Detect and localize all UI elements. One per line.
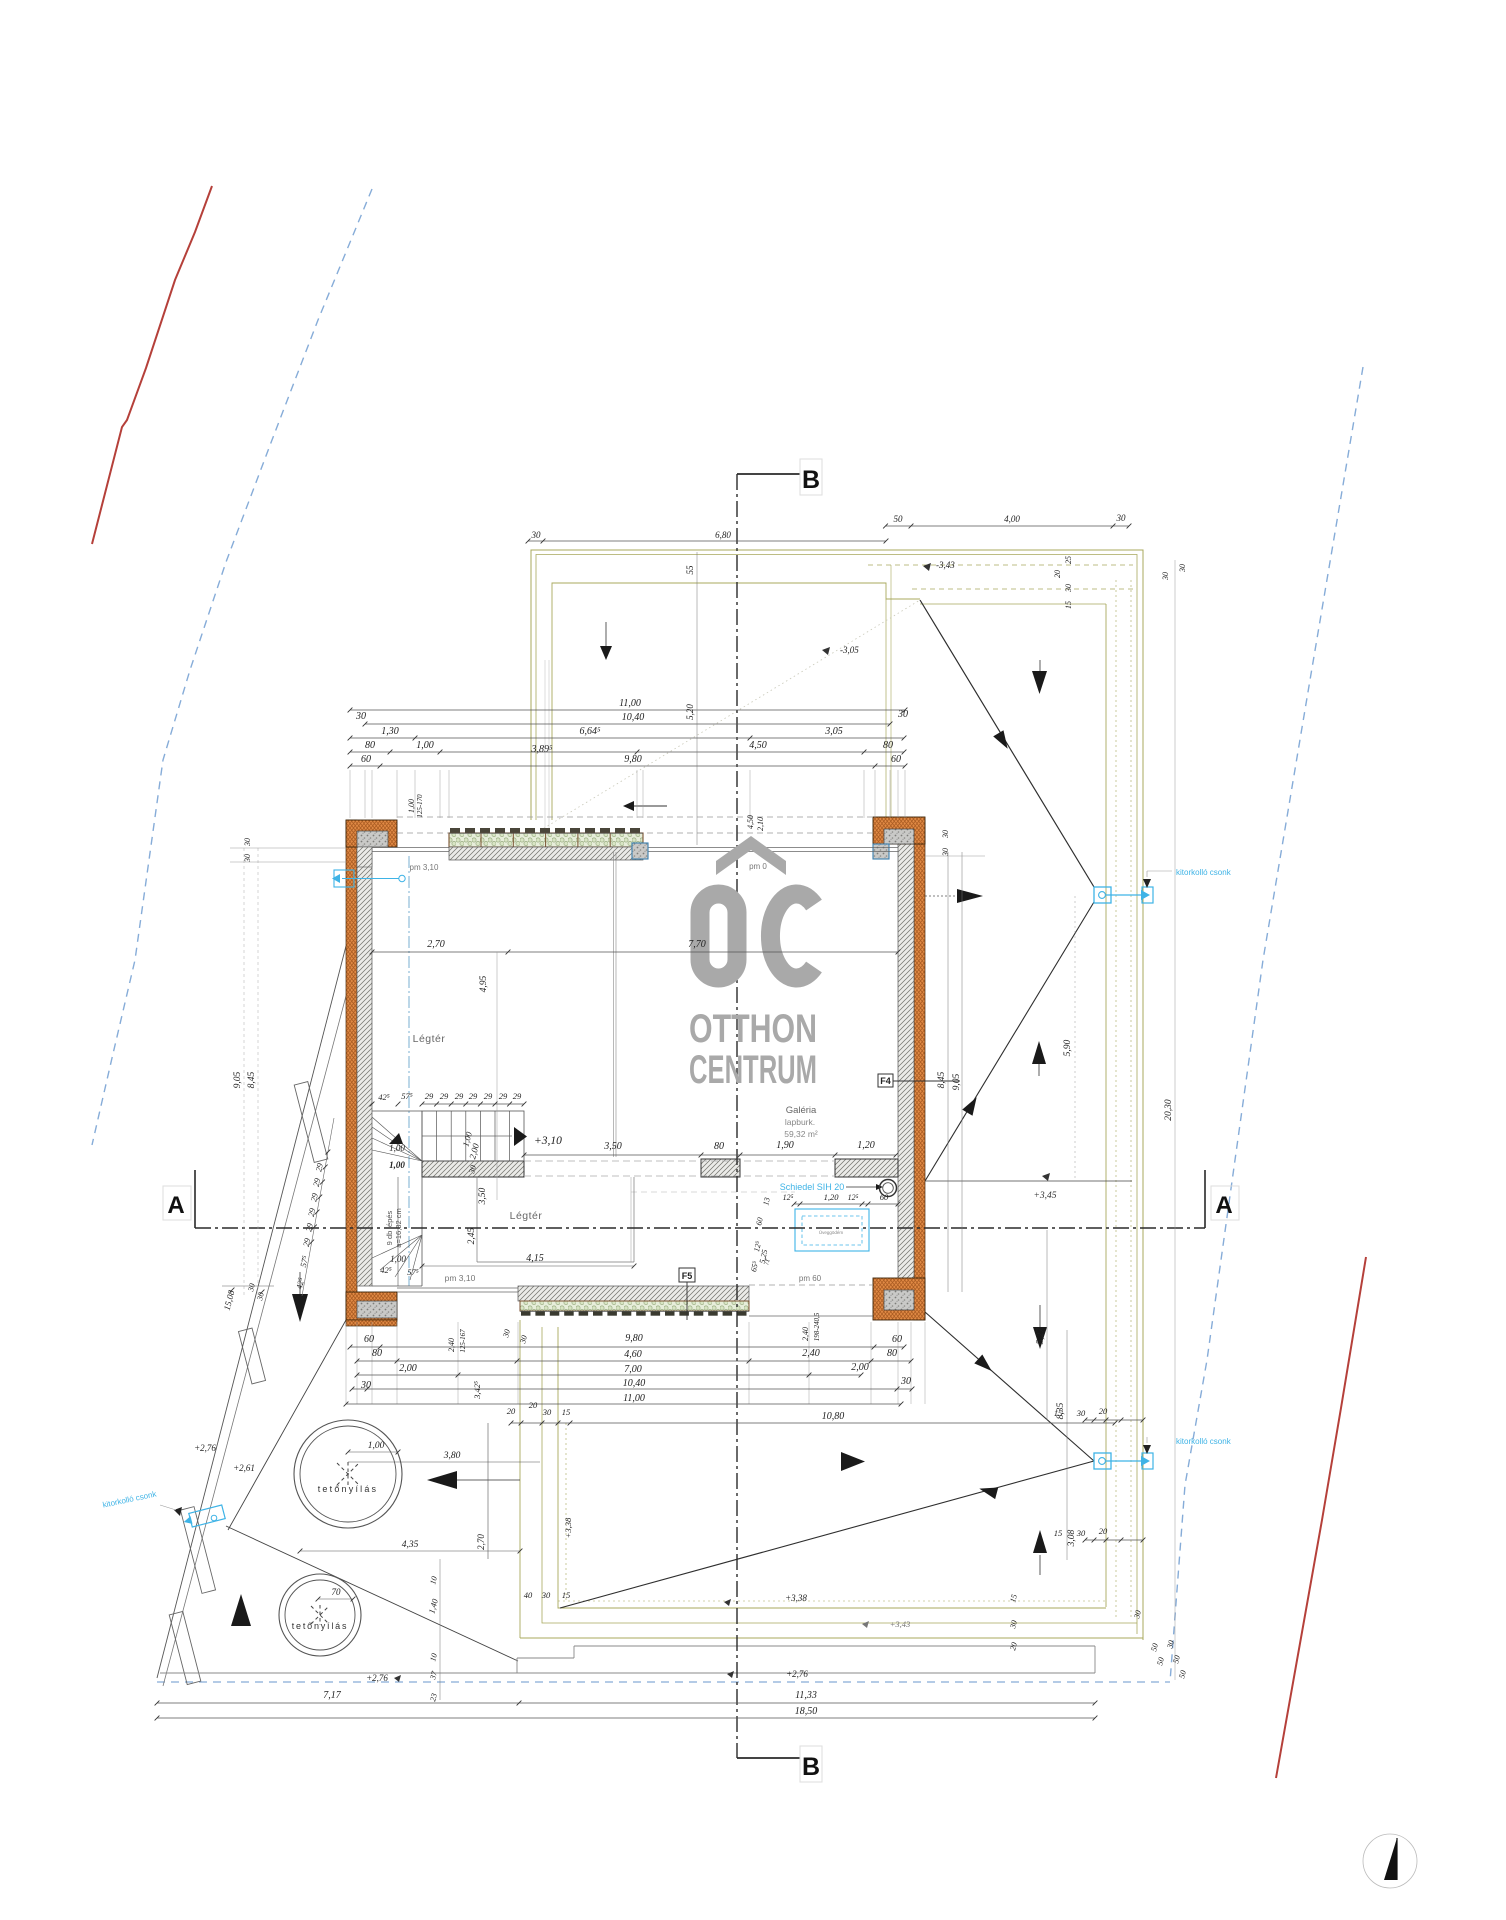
svg-text:4,60: 4,60: [624, 1349, 642, 1360]
svg-text:40: 40: [524, 1590, 533, 1600]
svg-text:1,90: 1,90: [776, 1140, 794, 1151]
svg-text:Schiedel SIH 20: Schiedel SIH 20: [780, 1182, 845, 1192]
svg-text:4,50: 4,50: [749, 740, 767, 751]
svg-text:9,05: 9,05: [233, 1071, 243, 1088]
svg-text:B: B: [802, 466, 820, 494]
svg-text:125-170: 125-170: [416, 794, 424, 818]
svg-text:29: 29: [425, 1091, 434, 1101]
svg-text:29: 29: [484, 1091, 493, 1101]
svg-text:9,05: 9,05: [952, 1073, 962, 1090]
svg-text:30: 30: [243, 854, 252, 863]
svg-text:30: 30: [1178, 564, 1187, 573]
svg-text:6,64⁵: 6,64⁵: [580, 726, 602, 737]
svg-text:11,33: 11,33: [795, 1690, 817, 1701]
svg-text:4,50: 4,50: [746, 815, 755, 829]
svg-text:2,00: 2,00: [851, 1362, 869, 1373]
svg-text:80: 80: [365, 740, 375, 751]
svg-text:30: 30: [542, 1407, 552, 1417]
svg-text:70: 70: [332, 1587, 342, 1597]
svg-text:A: A: [1215, 1192, 1232, 1219]
svg-text:pm 3,10: pm 3,10: [410, 863, 439, 872]
svg-text:57⁵: 57⁵: [407, 1267, 419, 1277]
svg-text:-3,05: -3,05: [840, 645, 859, 655]
svg-text:29: 29: [455, 1091, 464, 1101]
svg-text:+2,76: +2,76: [786, 1669, 808, 1679]
svg-text:60: 60: [892, 1334, 902, 1345]
svg-text:2,40: 2,40: [801, 1327, 810, 1341]
svg-text:B: B: [802, 1753, 820, 1781]
svg-text:2,45: 2,45: [467, 1227, 477, 1244]
svg-text:3,05: 3,05: [824, 726, 843, 737]
svg-text:5,90: 5,90: [1063, 1039, 1073, 1056]
svg-text:30: 30: [1064, 584, 1073, 593]
svg-text:2,70: 2,70: [427, 939, 445, 950]
svg-text:pm 3,10: pm 3,10: [445, 1273, 476, 1283]
svg-text:30: 30: [941, 848, 950, 857]
svg-text:A: A: [167, 1192, 184, 1219]
svg-text:1,00: 1,00: [407, 799, 416, 813]
svg-text:1,00: 1,00: [389, 1143, 405, 1153]
svg-text:15: 15: [1054, 1528, 1063, 1538]
svg-text:30: 30: [941, 830, 950, 839]
svg-text:20: 20: [1099, 1526, 1108, 1536]
svg-text:1,20: 1,20: [824, 1192, 840, 1202]
svg-text:3,80: 3,80: [443, 1451, 461, 1461]
svg-text:125-167: 125-167: [459, 1329, 467, 1353]
svg-text:2,70: 2,70: [476, 1534, 486, 1550]
svg-text:30: 30: [1161, 572, 1170, 581]
svg-text:20: 20: [507, 1406, 516, 1416]
svg-text:25: 25: [1064, 556, 1073, 564]
svg-text:30: 30: [900, 1376, 911, 1387]
svg-text:6,80: 6,80: [715, 530, 731, 540]
svg-text:1,30: 1,30: [381, 726, 399, 737]
svg-text:29: 29: [513, 1091, 522, 1101]
svg-text:+2,76: +2,76: [194, 1443, 216, 1453]
svg-text:18,50: 18,50: [795, 1706, 818, 1717]
svg-text:60: 60: [880, 1192, 889, 1202]
svg-text:30: 30: [1116, 513, 1127, 523]
svg-text:+2,76: +2,76: [366, 1673, 388, 1683]
svg-text:+2,61: +2,61: [233, 1463, 255, 1473]
svg-text:57⁵: 57⁵: [401, 1091, 413, 1101]
svg-text:11,00: 11,00: [623, 1393, 645, 1404]
svg-text:7,17: 7,17: [323, 1690, 342, 1701]
svg-text:20: 20: [1053, 570, 1062, 578]
svg-text:5,20: 5,20: [685, 704, 695, 720]
svg-text:15: 15: [562, 1407, 571, 1417]
svg-text:4,35: 4,35: [402, 1540, 419, 1550]
svg-text:20: 20: [1099, 1406, 1108, 1416]
svg-text:15: 15: [1054, 1408, 1063, 1418]
svg-text:5,27: 5,27: [1036, 1326, 1046, 1344]
svg-text:9,80: 9,80: [625, 1333, 643, 1344]
svg-text:9,80: 9,80: [624, 754, 642, 765]
svg-text:Légtér: Légtér: [413, 1033, 446, 1045]
svg-text:3,08: 3,08: [1067, 1529, 1077, 1547]
svg-text:30: 30: [355, 711, 366, 722]
svg-text:60: 60: [361, 754, 371, 765]
svg-text:30: 30: [243, 838, 252, 847]
svg-text:tetőnyílás: tetőnyílás: [292, 1621, 349, 1631]
svg-text:Galéria: Galéria: [786, 1105, 817, 1116]
svg-text:+3,38: +3,38: [563, 1517, 573, 1538]
svg-text:30: 30: [531, 530, 542, 540]
svg-text:80: 80: [372, 1348, 382, 1359]
svg-text:lapburk.: lapburk.: [785, 1117, 815, 1127]
svg-text:15: 15: [1064, 601, 1073, 609]
svg-text:8,45: 8,45: [247, 1071, 257, 1088]
svg-text:42⁵: 42⁵: [378, 1092, 390, 1102]
svg-text:30: 30: [1076, 1528, 1086, 1538]
svg-text:7,70: 7,70: [688, 939, 706, 950]
svg-text:30: 30: [541, 1590, 551, 1600]
svg-text:15: 15: [562, 1590, 571, 1600]
svg-text:29: 29: [469, 1091, 478, 1101]
svg-text:4,15: 4,15: [526, 1253, 544, 1264]
svg-text:10,40: 10,40: [623, 1378, 646, 1389]
svg-text:42⁵: 42⁵: [380, 1265, 392, 1275]
svg-text:60: 60: [891, 754, 901, 765]
svg-text:4,95: 4,95: [479, 975, 489, 992]
svg-text:60: 60: [364, 1334, 374, 1345]
svg-text:+3,45: +3,45: [1033, 1191, 1056, 1201]
svg-text:50: 50: [894, 514, 904, 524]
svg-text:1,00: 1,00: [416, 740, 434, 751]
svg-text:Légtér: Légtér: [510, 1210, 543, 1222]
svg-text:kitorkolló csonk: kitorkolló csonk: [1176, 868, 1232, 877]
svg-text:CENTRUM: CENTRUM: [689, 1048, 817, 1092]
svg-text:198-240,5: 198-240,5: [813, 1312, 821, 1341]
svg-text:80: 80: [883, 740, 893, 751]
svg-text:12⁵: 12⁵: [783, 1193, 794, 1202]
svg-text:30: 30: [360, 1380, 371, 1391]
svg-text:+3,10: +3,10: [534, 1135, 562, 1147]
svg-text:-3,43: -3,43: [936, 560, 955, 570]
svg-text:3,42⁵: 3,42⁵: [472, 1381, 482, 1400]
svg-text:F4: F4: [880, 1076, 891, 1086]
svg-text:2,40: 2,40: [447, 1338, 456, 1352]
svg-text:11,00: 11,00: [619, 698, 641, 709]
svg-text:3,89⁵: 3,89⁵: [531, 744, 554, 755]
svg-text:F5: F5: [682, 1271, 693, 1281]
svg-text:80: 80: [714, 1141, 724, 1152]
svg-text:pm 0: pm 0: [749, 862, 767, 871]
svg-text:+3,38: +3,38: [785, 1593, 807, 1603]
svg-text:29: 29: [499, 1091, 508, 1101]
svg-text:30: 30: [1076, 1408, 1086, 1418]
svg-text:1,00: 1,00: [390, 1254, 406, 1264]
svg-text:Üveggödém: Üveggödém: [819, 1229, 844, 1235]
svg-text:1,00: 1,00: [389, 1160, 405, 1170]
svg-text:1,20: 1,20: [857, 1140, 875, 1151]
svg-text:3,50: 3,50: [603, 1141, 622, 1152]
svg-text:30: 30: [897, 709, 908, 720]
svg-text:3,50: 3,50: [478, 1187, 488, 1205]
svg-text:2,40: 2,40: [802, 1348, 820, 1359]
svg-text:2,00: 2,00: [399, 1363, 417, 1374]
svg-text:8,45: 8,45: [937, 1071, 947, 1088]
svg-text:12⁵: 12⁵: [848, 1193, 859, 1202]
svg-text:55: 55: [685, 565, 695, 575]
svg-text:20,30: 20,30: [1164, 1099, 1174, 1121]
svg-text:OTTHON: OTTHON: [689, 1007, 817, 1051]
svg-text:kitorkolló csonk: kitorkolló csonk: [1176, 1437, 1232, 1446]
svg-text:2,10: 2,10: [756, 817, 765, 831]
svg-text:4,00: 4,00: [1004, 514, 1020, 524]
svg-text:80: 80: [887, 1348, 897, 1359]
svg-text:29: 29: [440, 1091, 449, 1101]
svg-text:tetőnyílás: tetőnyílás: [318, 1484, 379, 1494]
svg-text:10,80: 10,80: [822, 1411, 845, 1422]
svg-text:7,00: 7,00: [624, 1364, 642, 1375]
svg-text:pm 60: pm 60: [799, 1274, 822, 1283]
svg-text:1,00: 1,00: [368, 1441, 385, 1451]
svg-text:20: 20: [529, 1400, 538, 1410]
svg-text:59,32 m²: 59,32 m²: [784, 1129, 818, 1139]
svg-text:10,40: 10,40: [622, 712, 645, 723]
svg-text:+3,43: +3,43: [890, 1619, 911, 1629]
